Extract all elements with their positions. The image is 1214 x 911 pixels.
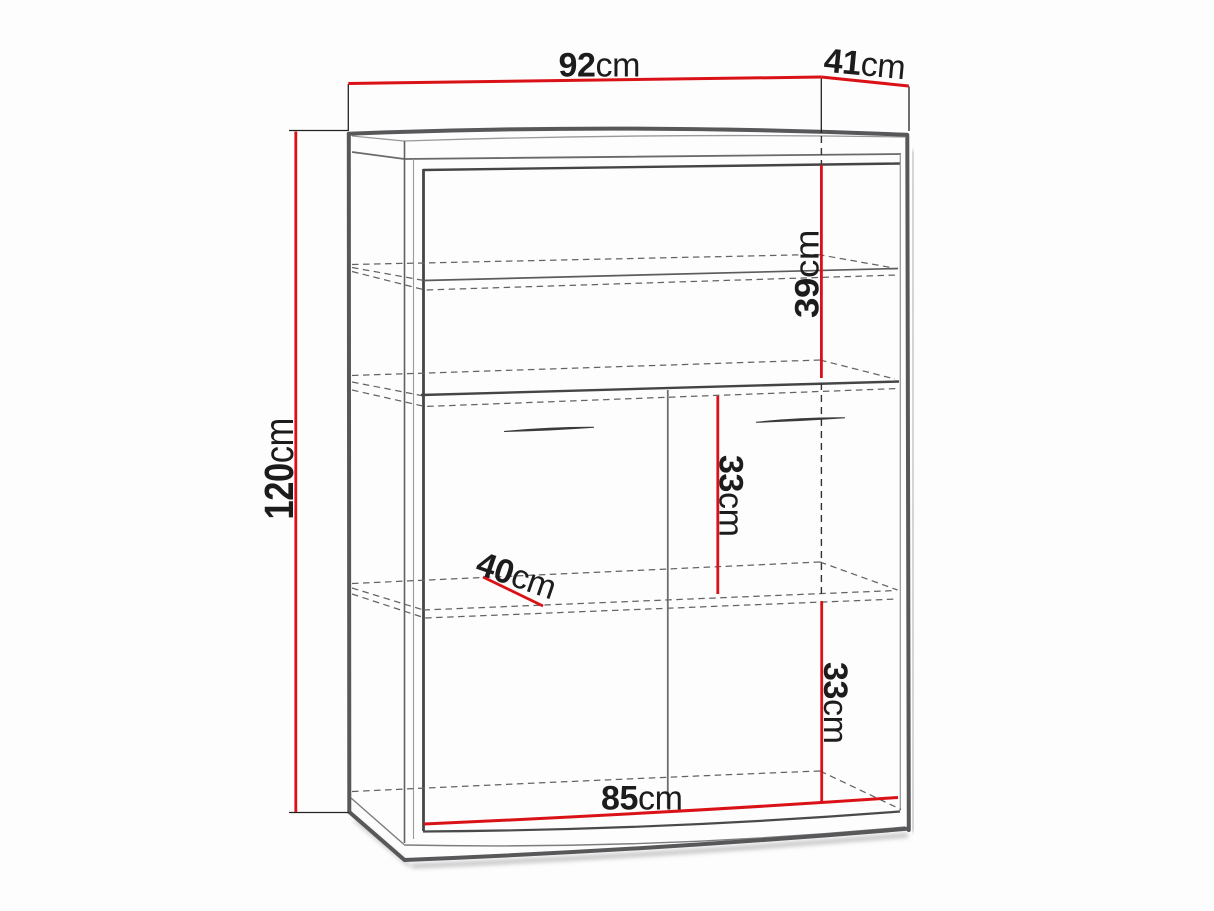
svg-text:41cm: 41cm [822, 42, 907, 88]
svg-text:120cm: 120cm [257, 418, 302, 519]
svg-text:33cm: 33cm [712, 455, 750, 537]
svg-text:33cm: 33cm [816, 662, 854, 744]
svg-text:40cm: 40cm [471, 545, 560, 607]
svg-text:85cm: 85cm [601, 780, 683, 818]
svg-text:39cm: 39cm [789, 230, 826, 318]
svg-text:92cm: 92cm [559, 47, 641, 85]
